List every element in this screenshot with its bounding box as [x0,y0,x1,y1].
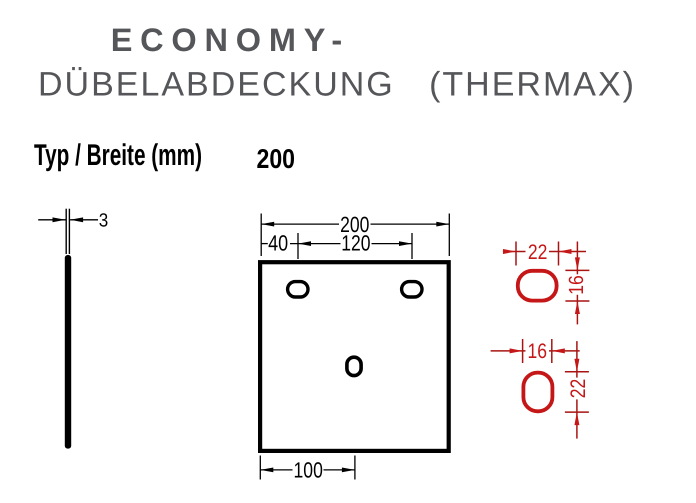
svg-text:22: 22 [567,379,590,399]
svg-text:3: 3 [99,210,109,231]
svg-text:Typ / Breite (mm): Typ / Breite (mm) [34,139,202,172]
svg-text:16: 16 [527,340,547,363]
svg-text:22: 22 [528,241,548,264]
svg-text:40: 40 [268,231,288,256]
svg-text:200: 200 [257,143,296,174]
svg-text:DÜBELABDECKUNG (THERMAX): DÜBELABDECKUNG (THERMAX) [38,65,636,103]
svg-text:100: 100 [294,458,323,483]
svg-text:16: 16 [565,275,588,295]
svg-text:120: 120 [341,231,370,256]
svg-text:ECONOMY-: ECONOMY- [111,22,350,58]
